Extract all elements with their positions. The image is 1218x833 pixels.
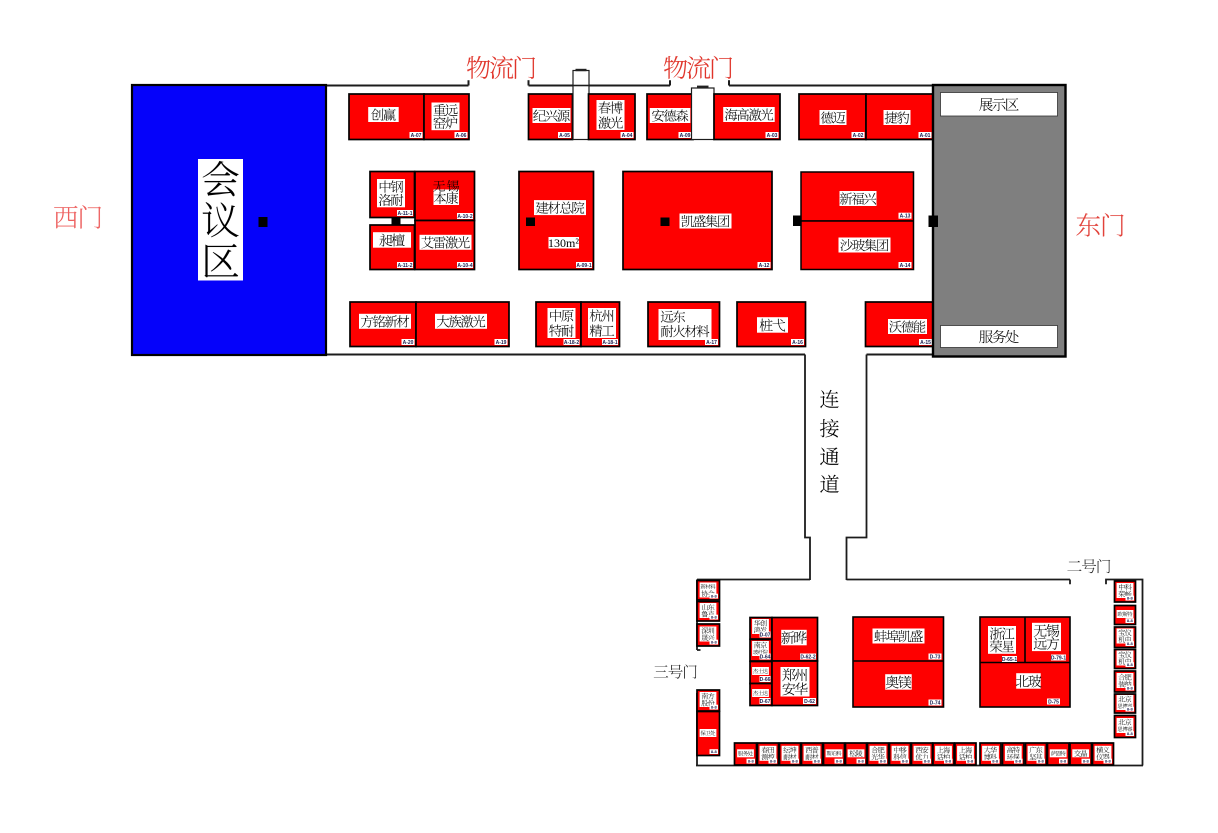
svg-text:A-18-1: A-18-1 (602, 340, 618, 346)
svg-text:8-8: 8-8 (1015, 759, 1022, 764)
svg-text:8-8: 8-8 (1060, 759, 1067, 764)
svg-text:8-8: 8-8 (711, 594, 718, 599)
svg-text:8-8: 8-8 (1127, 596, 1134, 601)
svg-text:8-8: 8-8 (711, 640, 718, 645)
svg-text:8-8: 8-8 (1127, 662, 1134, 667)
svg-text:A-09-1: A-09-1 (576, 263, 592, 269)
svg-text:8-8: 8-8 (770, 759, 777, 764)
svg-text:A-06: A-06 (456, 133, 467, 139)
svg-text:A-02: A-02 (853, 133, 864, 139)
svg-text:8-8: 8-8 (836, 759, 843, 764)
svg-text:8-8: 8-8 (1105, 759, 1112, 764)
svg-text:A-14: A-14 (900, 263, 911, 269)
svg-text:8-8: 8-8 (792, 759, 799, 764)
svg-text:D-79-1: D-79-1 (1051, 655, 1067, 661)
svg-text:A-13: A-13 (900, 214, 911, 220)
svg-text:8-8: 8-8 (748, 759, 755, 764)
svg-text:A-01: A-01 (920, 133, 931, 139)
svg-text:8-8: 8-8 (711, 615, 718, 620)
svg-text:8-8: 8-8 (1083, 759, 1090, 764)
svg-text:8-8: 8-8 (1127, 641, 1134, 646)
svg-text:8-8: 8-8 (1127, 707, 1134, 712)
svg-text:A-03: A-03 (767, 133, 778, 139)
svg-text:8-8: 8-8 (858, 759, 865, 764)
svg-text:8-8: 8-8 (1127, 731, 1134, 736)
svg-text:D-62: D-62 (804, 699, 815, 705)
svg-text:A-20: A-20 (403, 340, 414, 346)
svg-text:A-17: A-17 (706, 340, 717, 346)
svg-text:D-07: D-07 (760, 632, 771, 638)
svg-text:8-8: 8-8 (711, 705, 718, 710)
svg-text:A-12: A-12 (759, 263, 770, 269)
svg-text:D-62-2: D-62-2 (800, 654, 816, 660)
svg-text:8-8: 8-8 (880, 759, 887, 764)
svg-text:A-05: A-05 (559, 133, 570, 139)
svg-text:130m²: 130m² (548, 236, 579, 250)
svg-text:8-8: 8-8 (945, 759, 952, 764)
svg-text:A-11-2: A-11-2 (397, 263, 412, 269)
svg-text:8-8: 8-8 (1127, 686, 1134, 691)
svg-text:8-8: 8-8 (992, 759, 999, 764)
svg-text:8-8: 8-8 (711, 749, 718, 754)
svg-text:8-8: 8-8 (924, 759, 931, 764)
svg-text:A-09: A-09 (680, 133, 691, 139)
svg-text:A-15: A-15 (920, 340, 931, 346)
svg-text:A-19: A-19 (496, 340, 507, 346)
svg-text:8-8: 8-8 (967, 759, 974, 764)
svg-text:8-8: 8-8 (1038, 759, 1045, 764)
svg-text:A-07: A-07 (411, 133, 422, 139)
svg-text:D-74: D-74 (930, 700, 941, 706)
svg-text:D-73: D-73 (930, 654, 941, 660)
svg-text:8-8: 8-8 (1127, 618, 1134, 623)
svg-text:D-64: D-64 (760, 654, 771, 660)
svg-text:A-04: A-04 (622, 133, 633, 139)
svg-text:A-11-1: A-11-1 (397, 211, 412, 217)
svg-text:D-66: D-66 (760, 677, 771, 683)
svg-text:D-75: D-75 (1048, 699, 1059, 705)
svg-text:D-67: D-67 (760, 699, 771, 705)
svg-text:8-8: 8-8 (902, 759, 909, 764)
svg-text:8-8: 8-8 (814, 759, 821, 764)
svg-text:A-10-4: A-10-4 (457, 263, 473, 269)
svg-text:D-65-1: D-65-1 (1002, 657, 1018, 663)
svg-text:A-10-2: A-10-2 (457, 214, 473, 220)
svg-text:A-18-2: A-18-2 (564, 340, 580, 346)
svg-text:A-16: A-16 (792, 340, 803, 346)
